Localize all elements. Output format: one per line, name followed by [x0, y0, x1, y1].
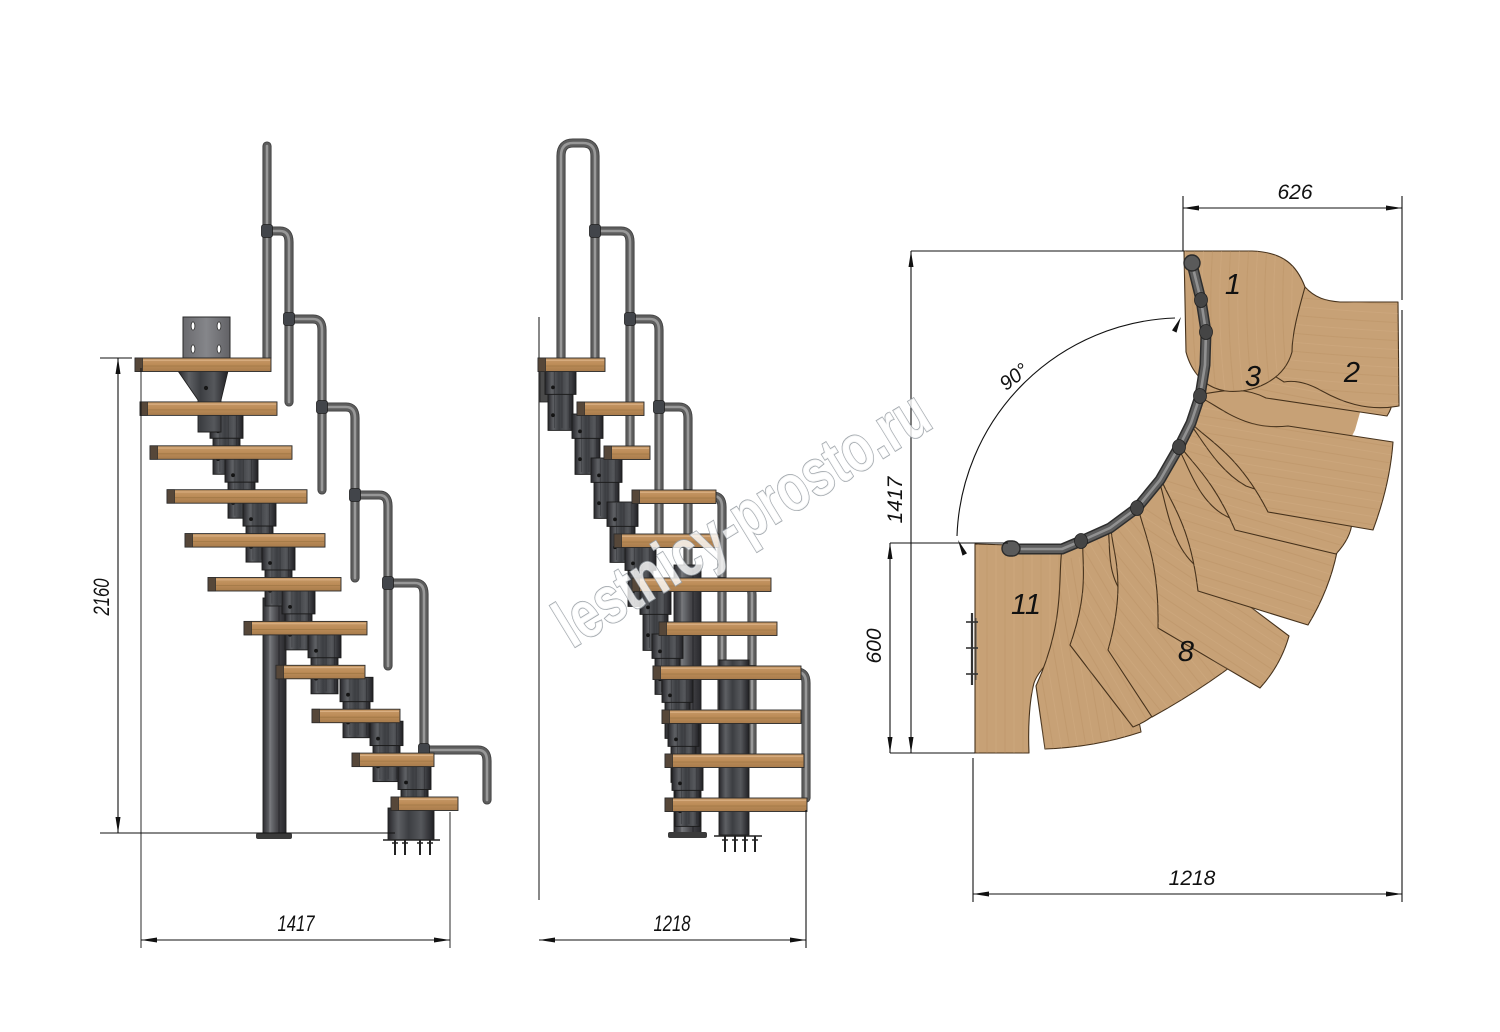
svg-text:1417: 1417	[278, 911, 316, 936]
svg-text:11: 11	[1011, 589, 1041, 621]
svg-text:3: 3	[1245, 361, 1261, 393]
svg-text:1417: 1417	[884, 475, 907, 523]
svg-text:2: 2	[1343, 357, 1360, 389]
svg-text:2160: 2160	[89, 578, 114, 616]
svg-text:8: 8	[1178, 636, 1194, 668]
svg-text:1: 1	[1225, 269, 1241, 301]
svg-text:1218: 1218	[1169, 867, 1216, 890]
svg-text:1218: 1218	[654, 911, 692, 936]
svg-text:626: 626	[1277, 181, 1312, 204]
svg-text:600: 600	[863, 628, 886, 663]
